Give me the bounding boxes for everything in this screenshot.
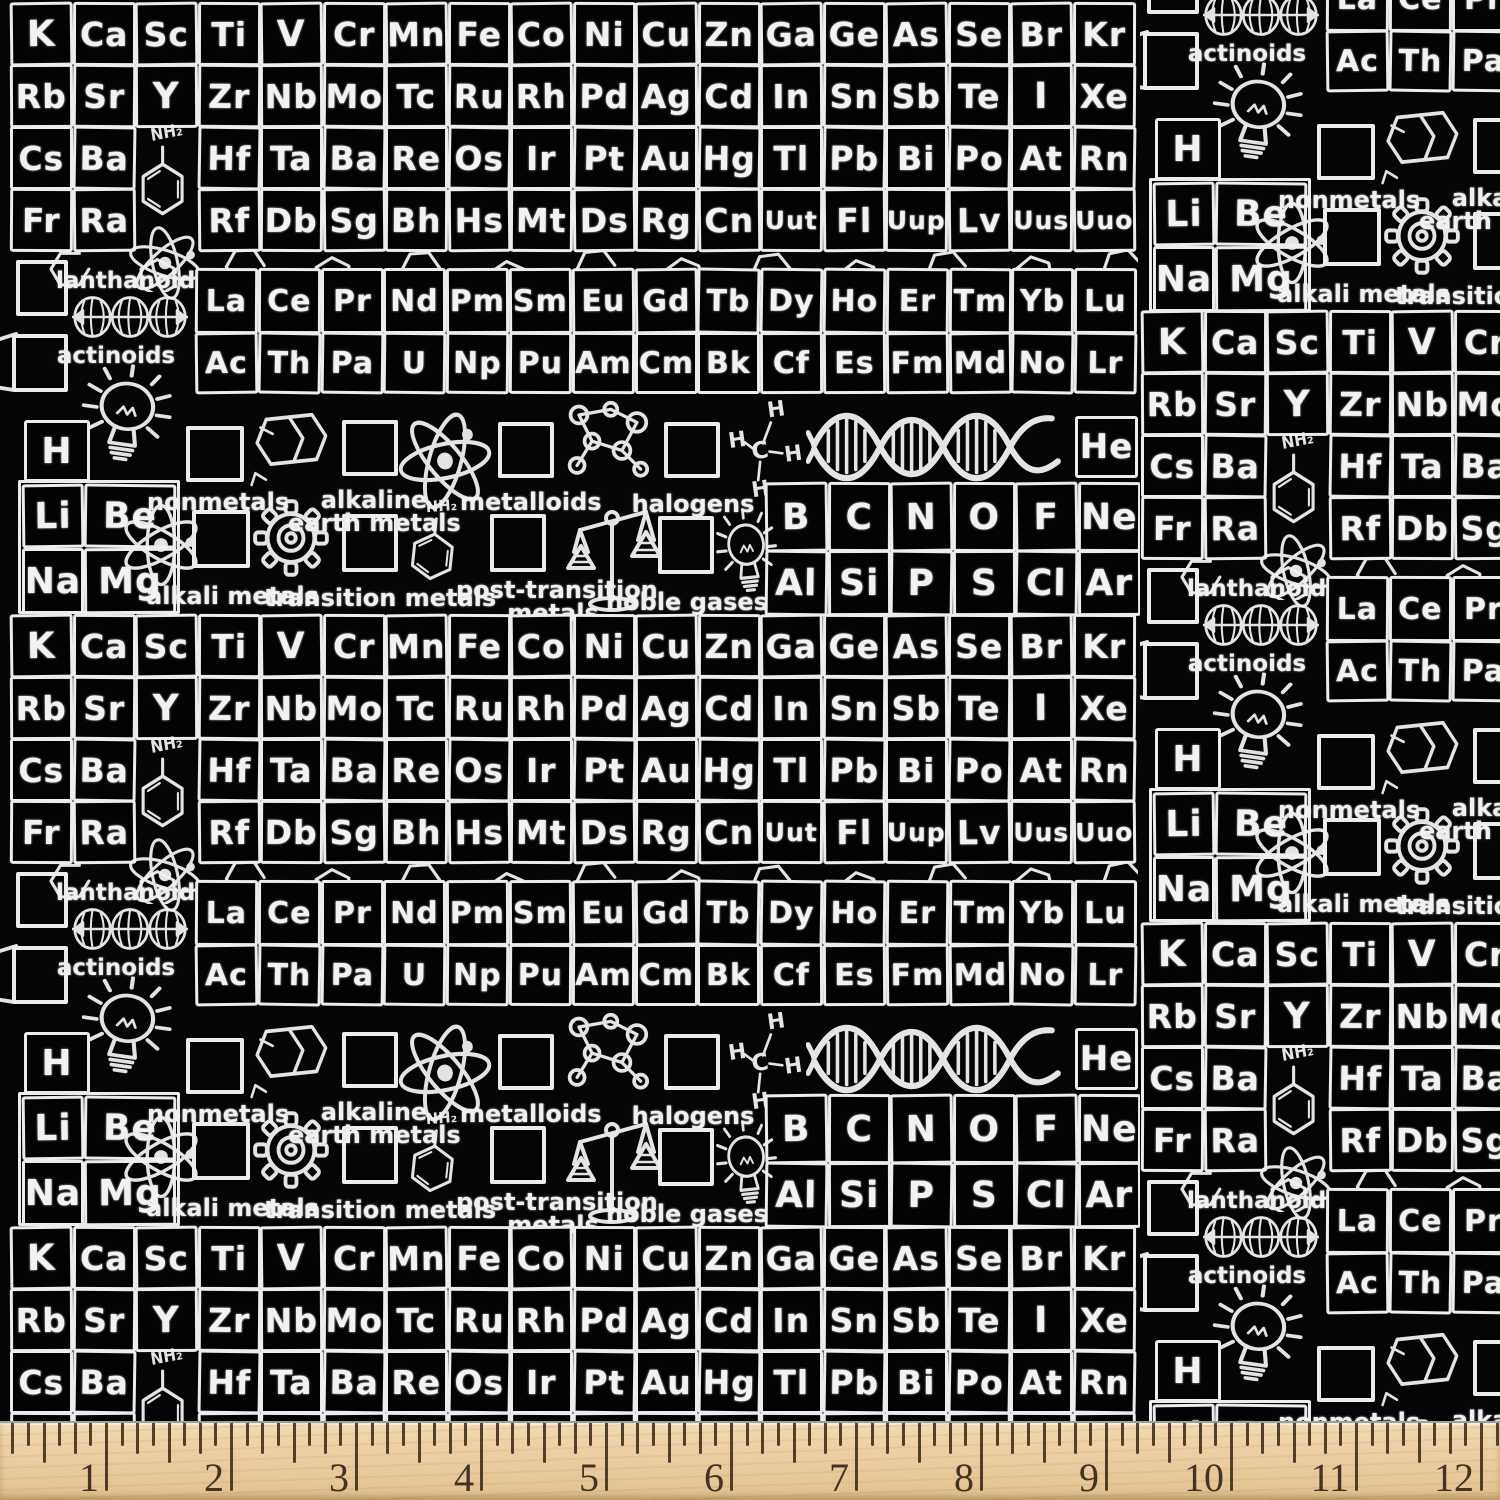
dna-helix-icon [806,402,1070,490]
element-cell: Hs [447,800,510,865]
element-cell: Hs [447,188,510,253]
ruler-tick [261,1423,264,1454]
ruler-tick [964,1423,967,1446]
element-cell: Lu [1074,268,1137,334]
ruler-tick [152,1423,155,1446]
ruler-tick [949,1423,952,1454]
ruler-tick [1293,1423,1296,1463]
element-cell: Cd [697,676,760,741]
ruler-tick [1214,1423,1217,1446]
element-cell: In [760,1288,823,1352]
element-cell: Ba [1203,1046,1266,1111]
svg-text:H: H [783,441,804,468]
ruler-tick [730,1423,733,1491]
element-cell: Li [1153,792,1216,857]
legend-square [498,1034,554,1090]
element-cell: Re [385,738,448,802]
element-cell: Ru [447,1288,510,1353]
ruler-tick [308,1423,311,1446]
element-cell: Es [823,944,886,1006]
element-cell: Li [22,484,85,549]
ruler-tick [1183,1423,1186,1446]
element-cell: Pm [446,880,509,946]
element-cell: Ti [197,2,260,66]
element-cell: H [1155,728,1221,790]
element-cell: As [885,1226,948,1291]
ruler-tick [74,1423,77,1454]
element-cell: Bi [885,126,948,190]
ruler-tick [418,1423,421,1463]
element-cell: C [827,482,890,552]
svg-text:NH₂: NH₂ [1280,1044,1315,1065]
ruler-tick [1089,1423,1092,1446]
element-cell: Rh [510,64,573,128]
molecule-icon [564,1012,650,1098]
legend-square [186,1038,244,1094]
ruler-tick [433,1423,436,1446]
element-cell: Md [948,332,1011,395]
ruler-tick [277,1423,280,1446]
element-cell: Am [572,944,635,1006]
periodic-pattern-tile: KCaScTiVCrMnFeCoNiCuZnGaGeAsSeBrKrRbSrYZ… [1140,310,1500,922]
element-cell: Rg [635,800,698,864]
element-cell: P [890,550,953,617]
element-cell: Cs [1141,1046,1204,1110]
element-cell: Cu [635,1226,698,1291]
element-cell: Sr [72,676,135,741]
element-cell: Nb [260,64,323,128]
element-cell: Bh [385,800,448,864]
ruler-tick [621,1423,624,1446]
element-cell: Po [947,1350,1010,1415]
element-cell: Sr [72,64,135,129]
gear-icon [1383,806,1461,886]
ruler-tick [886,1423,889,1454]
ruler-tick [558,1423,561,1446]
element-cell: La [195,268,258,334]
element-cell: Ra [1203,496,1266,561]
element-cell: Ce [1389,0,1452,32]
element-cell: Cs [10,738,73,802]
lightbulb-icon [711,1117,782,1213]
element-cell: Ti [197,1226,260,1290]
element-cell: Ce [1389,576,1452,642]
ruler-tick [58,1423,61,1446]
element-cell: Uut [760,800,823,864]
ruler-inch-number: 2 [178,1458,224,1498]
element-cell: Ac [195,944,259,1007]
ruler-tick [746,1423,749,1446]
element-cell: F [1015,482,1078,553]
element-cell: Ag [635,1288,698,1352]
element-cell: Fl [822,800,885,865]
category-label: lanthanoids [56,880,198,906]
element-cell: In [760,676,823,740]
ruler-tick [1308,1423,1311,1446]
element-cell: Fr [10,800,73,864]
wooden-ruler: 123456789101112 [0,1423,1500,1500]
element-cell: Ge [822,2,885,66]
ruler-tick [339,1423,342,1446]
element-cell: Nb [260,676,323,740]
ruler-tick [43,1423,46,1463]
element-cell: La [195,880,258,946]
element-cell: Sc [1266,922,1329,987]
element-cell: Ca [1203,310,1266,374]
element-cell: Dy [760,268,824,335]
element-cell: Ne [1077,1094,1140,1164]
element-cell: S [952,550,1015,616]
gear-icon [252,1110,330,1190]
ruler-tick [1199,1423,1202,1454]
element-cell: I [1010,1288,1073,1352]
element-cell: Ac [1326,30,1390,93]
svg-text:H: H [766,398,787,423]
element-cell: Ir [510,1350,573,1414]
ruler-tick [636,1423,639,1454]
element-cell: Cl [1015,1162,1078,1229]
element-cell: Te [947,1288,1010,1353]
element-cell: Cf [760,944,823,1006]
element-cell: Cm [635,332,698,394]
ruler-tick [105,1423,108,1491]
category-label: lanthanoids [1187,576,1329,602]
element-cell: Ta [1391,434,1454,498]
element-cell: Ta [260,738,323,802]
ruler-tick [199,1423,202,1454]
ruler-tick [1402,1423,1405,1446]
ruler-tick [574,1423,577,1454]
element-cell: Yb [1011,268,1074,334]
gear-icon [1383,196,1461,276]
element-cell: Ba [72,1350,135,1415]
element-cell: Cr [322,2,385,66]
element-cell: Hf [1328,1046,1391,1111]
element-cell: Sr [1203,372,1266,437]
element-cell: Np [446,944,509,1007]
element-cell: Tc [385,676,448,740]
legend-square [1473,728,1500,784]
element-cell: Rg [635,188,698,252]
ruler-tick [1105,1423,1108,1491]
element-cell: Y [1266,984,1329,1048]
legend-square [1473,1340,1500,1396]
svg-text:H: H [766,1010,787,1035]
element-cell: Mo [1453,372,1500,437]
ruler-tick [824,1423,827,1454]
element-cell: Pu [509,332,572,394]
element-cell: In [760,64,823,128]
element-cell: Pu [509,944,572,1006]
element-cell: Rn [1072,1350,1135,1415]
element-cell: Kr [1072,614,1135,678]
element-cell: Es [823,332,886,394]
element-cell: Na [1153,246,1215,312]
element-cell: Ge [822,1226,885,1290]
element-cell: Cn [697,800,760,865]
legend-square [1143,642,1199,700]
element-cell: Rb [1141,372,1204,436]
ruler-tick [464,1423,467,1446]
ruler-tick [1121,1423,1124,1446]
ruler-tick [761,1423,764,1454]
element-cell: Cr [322,614,385,678]
legend-square [498,422,554,478]
element-cell: Hg [697,1350,760,1415]
ruler-tick [918,1423,921,1463]
element-cell: V [260,1226,323,1291]
element-cell: Bk [697,944,760,1006]
element-cell: At [1010,126,1073,190]
element-cell: Ag [635,64,698,128]
element-cell: At [1010,738,1073,802]
ruler-tick [933,1423,936,1446]
element-cell: Si [827,1162,890,1228]
element-cell: Rh [510,1288,573,1352]
legend-square [1147,0,1199,14]
element-cell: Te [947,64,1010,129]
element-cell: Rb [10,64,73,128]
element-cell: N [890,1094,953,1165]
legend-square [1317,1346,1375,1402]
element-cell: Ba [1453,1046,1500,1111]
ruler-tick [371,1423,374,1446]
ruler-inch-number: 1 [53,1458,99,1498]
ruler-tick [652,1423,655,1446]
wood-grain [0,1423,1500,1500]
ruler-tick [324,1423,327,1454]
element-cell: Eu [572,268,635,335]
element-cell: Ca [72,614,135,678]
element-cell: Ni [572,2,635,66]
legend-square [192,1122,250,1180]
element-cell: Gd [634,880,698,947]
element-cell: Pr [321,268,384,334]
element-cell: Tb [697,879,761,946]
element-cell: Zn [697,1226,760,1290]
element-cell: Uus [1010,800,1073,864]
svg-text:NH₂: NH₂ [1280,432,1315,453]
legend-square [1143,32,1199,90]
element-cell: Uup [885,188,948,252]
element-cell: I [1010,64,1073,128]
element-cell: Ca [72,1226,135,1290]
svg-text:NH₂: NH₂ [149,736,184,757]
element-cell: Fr [1141,496,1204,560]
naphthalene-rings-icon [242,1009,342,1104]
ruler-inch-number: 10 [1178,1458,1224,1498]
ruler-tick [1324,1423,1327,1454]
ruler-inch-number: 4 [428,1458,474,1498]
legend-square [1473,822,1500,880]
element-cell: U [383,332,446,395]
element-cell: Pm [446,268,509,334]
element-cell: Pb [822,126,885,191]
naphthalene-rings-icon [242,397,342,492]
element-cell: Rb [10,1288,73,1352]
legend-square [342,1126,398,1184]
ruler-tick [168,1423,171,1463]
element-cell: Mo [322,1288,385,1353]
element-cell: Br [1010,1226,1073,1291]
element-cell: Ga [760,614,823,679]
element-cell: Fr [10,188,73,252]
element-cell: Rn [1072,126,1135,191]
ruler-tick [293,1423,296,1463]
element-cell: Ta [260,126,323,190]
ruler-tick [11,1423,14,1454]
element-cell: Th [1388,1252,1452,1315]
element-cell: Pa [1451,1252,1500,1315]
element-cell: Tl [760,738,823,802]
ruler-tick [714,1423,717,1446]
element-cell: K [1141,922,1204,987]
legend-square [664,1034,720,1090]
element-cell: Mo [322,676,385,741]
element-cell: Lr [1074,332,1138,395]
orbital-wave-icon [72,294,188,340]
element-cell: Pa [1451,30,1500,93]
svg-text:NH₂: NH₂ [425,1108,457,1129]
element-cell: Mt [510,188,573,252]
svg-text:NH₂: NH₂ [149,124,184,145]
ruler-tick [136,1423,139,1454]
element-cell: Cu [635,2,698,67]
naphthalene-rings-icon [1373,1317,1473,1412]
element-cell: Ra [72,800,135,865]
element-cell: Sg [322,800,385,865]
ruler-tick [1277,1423,1280,1446]
element-cell: Tm [948,880,1011,946]
element-cell: Fe [447,614,510,678]
element-cell: Ga [760,2,823,67]
legend-square [12,334,68,392]
ruler-tick [1371,1423,1374,1446]
element-cell: Sg [1453,1108,1500,1173]
ruler-tick [1074,1423,1077,1454]
element-cell: Mn [385,1226,448,1291]
element-cell: Ra [1203,1108,1266,1173]
element-cell: Pr [321,880,384,946]
element-cell: Uut [760,188,823,252]
benzene-ring-nh2-icon: NH₂ [1263,1044,1327,1146]
element-cell: Sn [822,64,885,129]
element-cell: Mt [510,800,573,864]
element-cell: Ce [1389,1188,1452,1254]
element-cell: Sc [1266,310,1329,375]
ruler-tick [1449,1423,1452,1454]
element-cell: Ho [823,268,887,335]
ruler-tick [1043,1423,1046,1463]
element-cell: At [1010,1350,1073,1414]
element-cell: Th [257,944,321,1007]
legend-square [192,510,250,568]
element-cell: Lv [947,800,1010,865]
element-cell: V [1391,310,1454,375]
dna-helix-icon [806,1014,1070,1102]
element-cell: Na [1153,856,1215,922]
element-cell: Ti [1328,310,1391,374]
element-cell: Fe [447,1226,510,1290]
ruler-tick [1355,1423,1358,1491]
element-cell: Xe [1072,1288,1135,1353]
legend-square [1317,734,1375,790]
ruler-tick [496,1423,499,1446]
legend-square [342,514,398,572]
element-cell: Se [947,614,1010,678]
element-cell: Ba [72,738,135,803]
ruler-tick [699,1423,702,1454]
orbital-wave-icon [1203,602,1319,648]
element-cell: La [1326,1188,1389,1254]
element-cell: Pt [572,1350,635,1415]
ruler-tick [214,1423,217,1446]
element-cell: Ba [322,126,385,191]
element-cell: Bi [885,738,948,802]
element-cell: Cu [635,614,698,679]
element-cell: Zr [1328,984,1391,1049]
element-cell: H [24,420,90,482]
element-cell: Y [135,676,198,740]
element-cell: Xe [1072,676,1135,741]
element-cell: Hf [197,738,260,803]
element-cell: Ac [1326,640,1390,703]
element-cell: Ba [72,126,135,191]
element-cell: Cs [10,1350,73,1414]
element-cell: C [827,1094,890,1164]
benzene-ring-nh2-icon: NH₂ [132,736,196,838]
periodic-fabric-main: KCaScTiVCrMnFeCoNiCuZnGaGeAsSeBrKrRbSrYZ… [0,0,1140,1500]
element-cell: Cl [1015,550,1078,617]
ruler-tick [1246,1423,1249,1446]
element-cell: Cs [10,126,73,190]
element-cell: Sg [1453,496,1500,561]
ruler-tick [183,1423,186,1446]
ruler-tick [1058,1423,1061,1446]
element-cell: Br [1010,614,1073,679]
ruler-tick [1027,1423,1030,1446]
element-cell: Th [1388,30,1452,93]
element-cell: Pr [1452,576,1500,642]
element-cell: Sb [885,676,948,740]
element-cell: Np [446,332,509,395]
legend-square [490,1126,546,1184]
element-cell: Sr [1203,984,1266,1049]
ruler-tick [89,1423,92,1446]
element-cell: Zr [1328,372,1391,437]
ruler-tick [839,1423,842,1446]
element-cell: Db [260,800,323,864]
molecule-icon [564,400,650,486]
element-cell: Re [385,126,448,190]
element-cell: Ta [260,1350,323,1414]
svg-text:H: H [728,427,748,454]
element-cell: Pt [572,738,635,803]
ruler-tick [1464,1423,1467,1446]
element-cell: Zn [697,614,760,678]
element-cell: Cm [635,944,698,1006]
element-cell: Mn [385,2,448,67]
element-cell: Sn [822,676,885,741]
element-cell: Db [260,188,323,252]
element-cell: Mn [385,614,448,679]
element-cell: Ba [1203,434,1266,499]
element-cell: Db [1391,1108,1454,1172]
category-label: lanthanoids [56,268,198,294]
element-cell: Zr [197,676,260,741]
ruler-inch-number: 3 [303,1458,349,1498]
element-cell: O [952,482,1015,552]
